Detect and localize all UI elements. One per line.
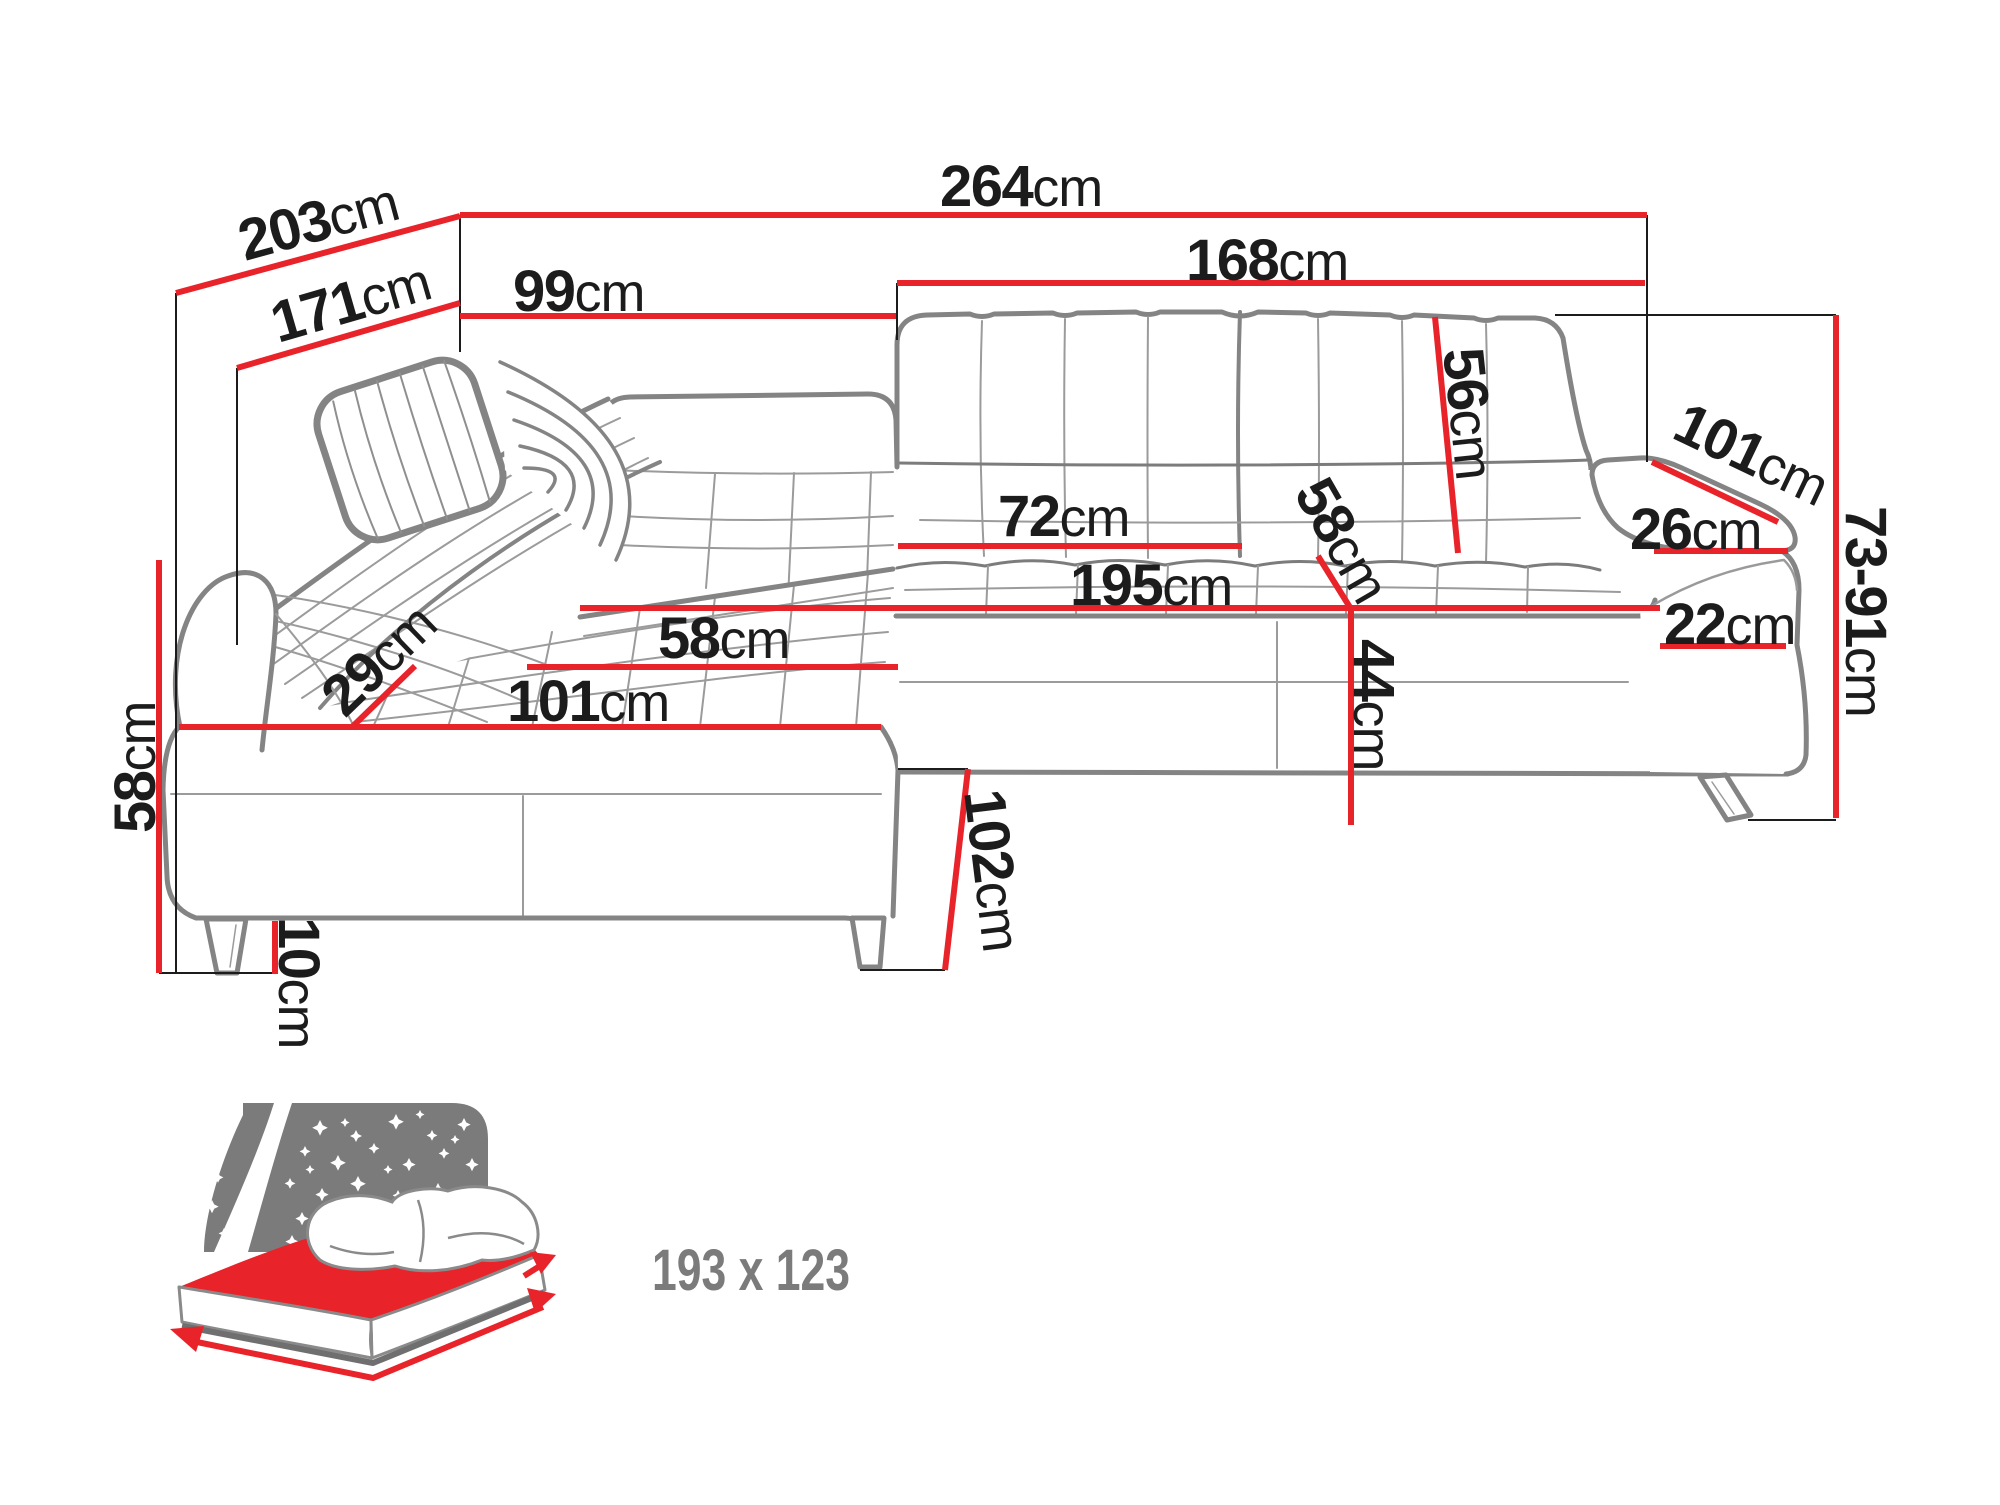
svg-text:264cm: 264cm bbox=[940, 154, 1102, 219]
svg-text:26cm: 26cm bbox=[1630, 497, 1762, 562]
svg-text:73-91cm: 73-91cm bbox=[1833, 506, 1898, 717]
svg-text:72cm: 72cm bbox=[998, 484, 1130, 549]
svg-text:193 x 123: 193 x 123 bbox=[652, 1238, 850, 1303]
svg-text:22cm: 22cm bbox=[1664, 592, 1796, 657]
svg-text:58cm: 58cm bbox=[103, 702, 168, 834]
svg-text:99cm: 99cm bbox=[513, 259, 645, 324]
svg-text:101cm: 101cm bbox=[507, 669, 669, 734]
svg-text:195cm: 195cm bbox=[1070, 553, 1232, 618]
svg-text:10cm: 10cm bbox=[266, 917, 331, 1049]
svg-text:58cm: 58cm bbox=[658, 606, 790, 671]
svg-text:44cm: 44cm bbox=[1341, 639, 1406, 771]
svg-text:168cm: 168cm bbox=[1186, 228, 1348, 293]
